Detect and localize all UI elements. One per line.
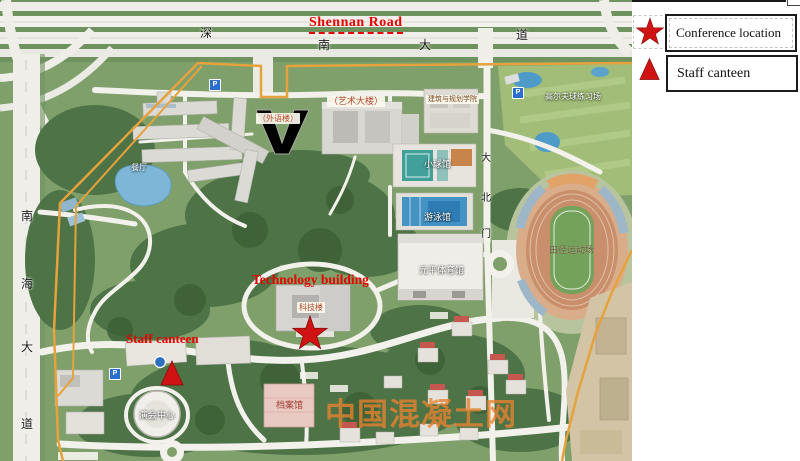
conference-location-star-icon	[291, 315, 329, 351]
parking-icon: P	[209, 79, 221, 91]
road-char-nanhai-4: 道	[21, 415, 33, 432]
road-char-gate-2: 北	[481, 189, 491, 204]
road-char-gate-3: 门	[481, 225, 491, 240]
campus-map-document: 深 南 大 道 南 海 大 道 大 北 门 （艺术大楼） （外语楼） 建筑与规划…	[0, 0, 800, 461]
campus-satellite-map: 深 南 大 道 南 海 大 道 大 北 门 （艺术大楼） （外语楼） 建筑与规划…	[0, 0, 632, 461]
satellite-terrain-graphic	[0, 0, 632, 461]
road-char-nanhai-2: 海	[21, 275, 33, 292]
legend-conference-location-label: Conference location	[667, 25, 781, 41]
label-yuanping-gym: 元平体育馆	[419, 263, 464, 276]
road-char-shennan-1: 深	[200, 24, 212, 41]
legend-star-icon	[635, 17, 665, 46]
label-athletics-field: 田径运动场	[549, 243, 594, 256]
label-art-building: （艺术大楼）	[327, 96, 385, 107]
label-archives-hall: 档案馆	[276, 398, 303, 411]
staff-canteen-triangle-icon	[160, 360, 184, 386]
label-foreign-language-building: （外语楼）	[256, 113, 300, 124]
label-small-ball-hall: 小球馆	[424, 157, 451, 170]
legend-top-border	[632, 0, 786, 2]
road-char-shennan-2: 南	[318, 36, 330, 53]
technology-building-annotation: Technology building	[252, 272, 369, 288]
label-technology-building-cn: 科技楼	[297, 302, 325, 313]
road-char-gate-1: 大	[481, 149, 491, 164]
legend-staff-canteen-label: Staff canteen	[668, 66, 750, 82]
label-architecture-college: 建筑与规划学院	[426, 95, 479, 104]
legend-panel: Conference location Staff canteen	[632, 0, 800, 461]
road-char-shennan-3: 大	[419, 36, 431, 53]
legend-triangle-icon	[639, 57, 660, 81]
road-char-shennan-4: 道	[516, 26, 528, 43]
legend-staff-canteen-box: Staff canteen	[666, 55, 798, 92]
label-performance-center: 演会中心	[139, 408, 175, 421]
label-swimming-hall: 游泳馆	[424, 210, 451, 223]
shennan-road-annotation: Shennan Road	[309, 15, 403, 34]
parking-icon: P	[512, 87, 524, 99]
cropped-box-corner	[787, 0, 800, 6]
label-golf-range: 高尔夫球练习场	[545, 91, 601, 102]
legend-conference-location-box: Conference location	[665, 14, 797, 52]
label-canteen-cn: 餐厅	[131, 162, 147, 173]
staff-canteen-annotation: Staff canteen	[126, 331, 199, 347]
watermark-text: 中国混凝土网	[325, 389, 517, 434]
road-char-nanhai-1: 南	[21, 207, 33, 224]
road-char-nanhai-3: 大	[21, 338, 33, 355]
parking-icon: P	[109, 368, 121, 380]
